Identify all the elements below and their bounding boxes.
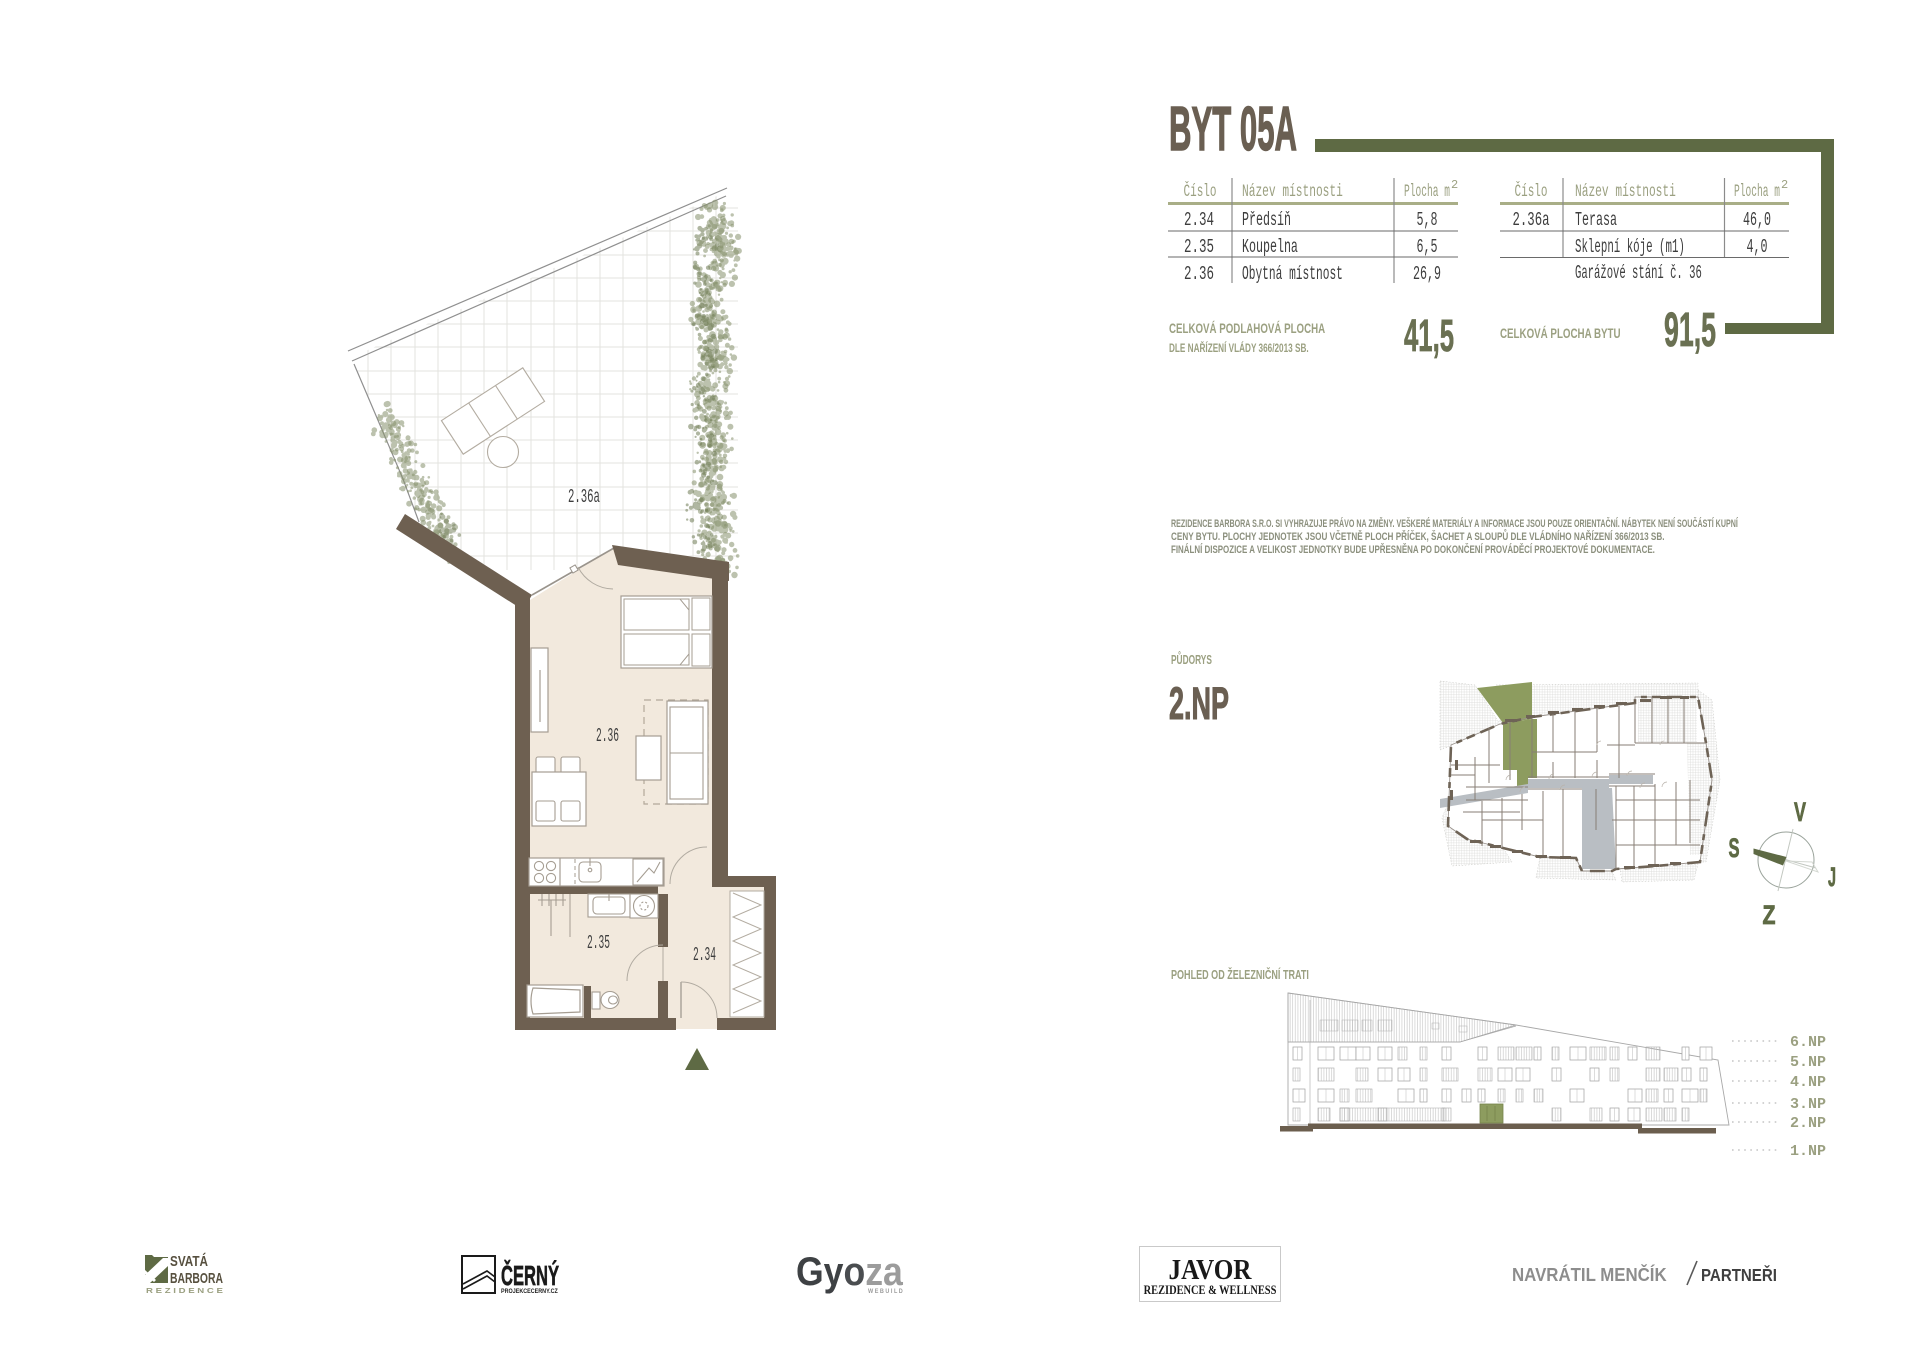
svg-text:Název místnosti: Název místnosti xyxy=(1575,182,1676,202)
svg-text:2.NP: 2.NP xyxy=(1169,678,1229,729)
svg-text:4.NP: 4.NP xyxy=(1790,1074,1826,1091)
svg-text:BARBORA: BARBORA xyxy=(170,1269,223,1286)
svg-text:91,5: 91,5 xyxy=(1664,304,1716,357)
svg-text:Obytná místnost: Obytná místnost xyxy=(1242,263,1343,285)
svg-text:REZIDENCE & WELLNESS: REZIDENCE & WELLNESS xyxy=(1144,1283,1277,1297)
svg-text:26,9: 26,9 xyxy=(1413,263,1441,285)
svg-text:2: 2 xyxy=(1781,178,1788,192)
svg-text:46,0: 46,0 xyxy=(1743,209,1771,231)
svg-text:2.36a: 2.36a xyxy=(568,486,600,508)
svg-text:Název místnosti: Název místnosti xyxy=(1242,182,1343,202)
svg-text:Předsíň: Předsíň xyxy=(1242,209,1291,231)
svg-text:6,5: 6,5 xyxy=(1417,236,1438,258)
svg-text:W E B U I L D: W E B U I L D xyxy=(868,1289,903,1295)
svg-text:CELKOVÁ PODLAHOVÁ PLOCHA: CELKOVÁ PODLAHOVÁ PLOCHA xyxy=(1169,319,1325,336)
svg-text:2.34: 2.34 xyxy=(693,944,716,967)
svg-text:2.NP: 2.NP xyxy=(1790,1115,1826,1132)
svg-text:R E Z I D E N C E: R E Z I D E N C E xyxy=(146,1286,223,1294)
svg-text:4,0: 4,0 xyxy=(1747,236,1768,258)
svg-text:2.35: 2.35 xyxy=(587,932,610,955)
svg-text:J: J xyxy=(1828,861,1836,892)
svg-text:NAVRÁTIL MENČÍK: NAVRÁTIL MENČÍK xyxy=(1512,1263,1667,1285)
svg-text:Číslo: Číslo xyxy=(1184,180,1217,202)
svg-text:S: S xyxy=(1729,833,1740,863)
svg-text:POHLED OD ŽELEZNIČNÍ TRATI: POHLED OD ŽELEZNIČNÍ TRATI xyxy=(1171,967,1309,982)
svg-text:PARTNEŘI: PARTNEŘI xyxy=(1701,1265,1777,1286)
svg-text:Terasa: Terasa xyxy=(1575,209,1617,231)
svg-text:5,8: 5,8 xyxy=(1417,209,1438,231)
svg-text:Číslo: Číslo xyxy=(1515,180,1548,202)
svg-text:DLE NAŘÍZENÍ VLÁDY 366/2013 SB: DLE NAŘÍZENÍ VLÁDY 366/2013 SB. xyxy=(1169,340,1309,355)
svg-text:Z: Z xyxy=(1763,901,1776,931)
svg-text:REZIDENCE BARBORA S.R.O. SI VY: REZIDENCE BARBORA S.R.O. SI VYHRAZUJE PR… xyxy=(1171,516,1738,529)
svg-text:V: V xyxy=(1794,796,1807,827)
svg-text:2: 2 xyxy=(1451,178,1458,192)
svg-text:Sklepní kóje (m1): Sklepní kóje (m1) xyxy=(1575,236,1685,258)
svg-text:CENY BYTU. PLOCHY JEDNOTEK JSO: CENY BYTU. PLOCHY JEDNOTEK JSOU VČETNĚ P… xyxy=(1171,530,1665,544)
svg-text:3.NP: 3.NP xyxy=(1790,1096,1826,1113)
svg-text:Plocha m: Plocha m xyxy=(1404,182,1450,202)
svg-text:2.36: 2.36 xyxy=(1184,264,1214,285)
svg-text:FINÁLNÍ DISPOZICE A VELIKOST J: FINÁLNÍ DISPOZICE A VELIKOST JEDNOTKY BU… xyxy=(1171,543,1655,557)
svg-text:2.34: 2.34 xyxy=(1184,210,1214,231)
svg-text:ČERNÝ: ČERNÝ xyxy=(501,1258,559,1291)
svg-text:BYT 05A: BYT 05A xyxy=(1169,96,1297,164)
svg-text:Koupelna: Koupelna xyxy=(1242,236,1298,258)
svg-text:PROJEKCECERNY.CZ: PROJEKCECERNY.CZ xyxy=(501,1289,558,1296)
svg-text:JAVOR: JAVOR xyxy=(1169,1253,1252,1285)
svg-text:CELKOVÁ PLOCHA BYTU: CELKOVÁ PLOCHA BYTU xyxy=(1500,324,1621,341)
svg-text:PŮDORYS: PŮDORYS xyxy=(1171,651,1212,668)
svg-text:SVATÁ: SVATÁ xyxy=(170,1253,208,1270)
svg-text:Garážové stání č. 36: Garážové stání č. 36 xyxy=(1575,262,1702,284)
svg-text:2.36: 2.36 xyxy=(596,725,619,748)
svg-text:Plocha m: Plocha m xyxy=(1734,182,1780,202)
svg-text:41,5: 41,5 xyxy=(1404,310,1454,360)
svg-text:2.36a: 2.36a xyxy=(1513,210,1550,231)
svg-text:6.NP: 6.NP xyxy=(1790,1034,1826,1051)
svg-text:1.NP: 1.NP xyxy=(1790,1143,1826,1160)
svg-text:5.NP: 5.NP xyxy=(1790,1054,1826,1071)
svg-text:2.35: 2.35 xyxy=(1184,237,1214,258)
